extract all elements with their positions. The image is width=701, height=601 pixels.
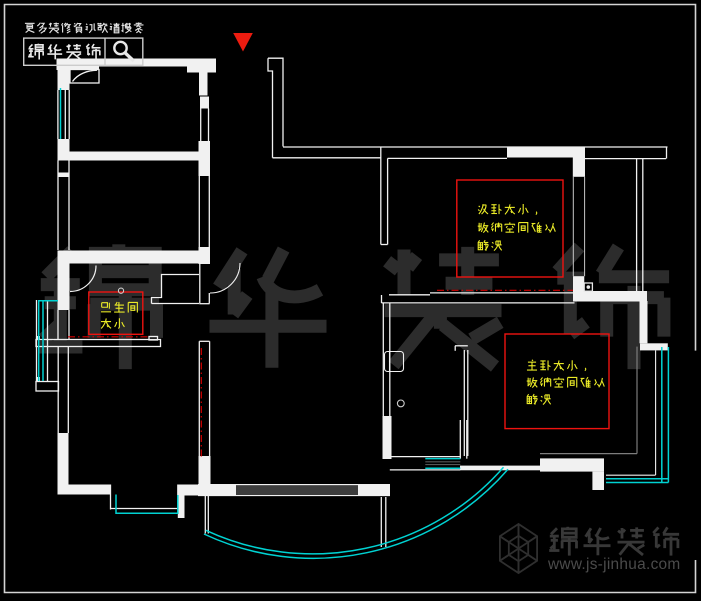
svg-text:www.js-jinhua.com: www.js-jinhua.com bbox=[547, 556, 681, 573]
